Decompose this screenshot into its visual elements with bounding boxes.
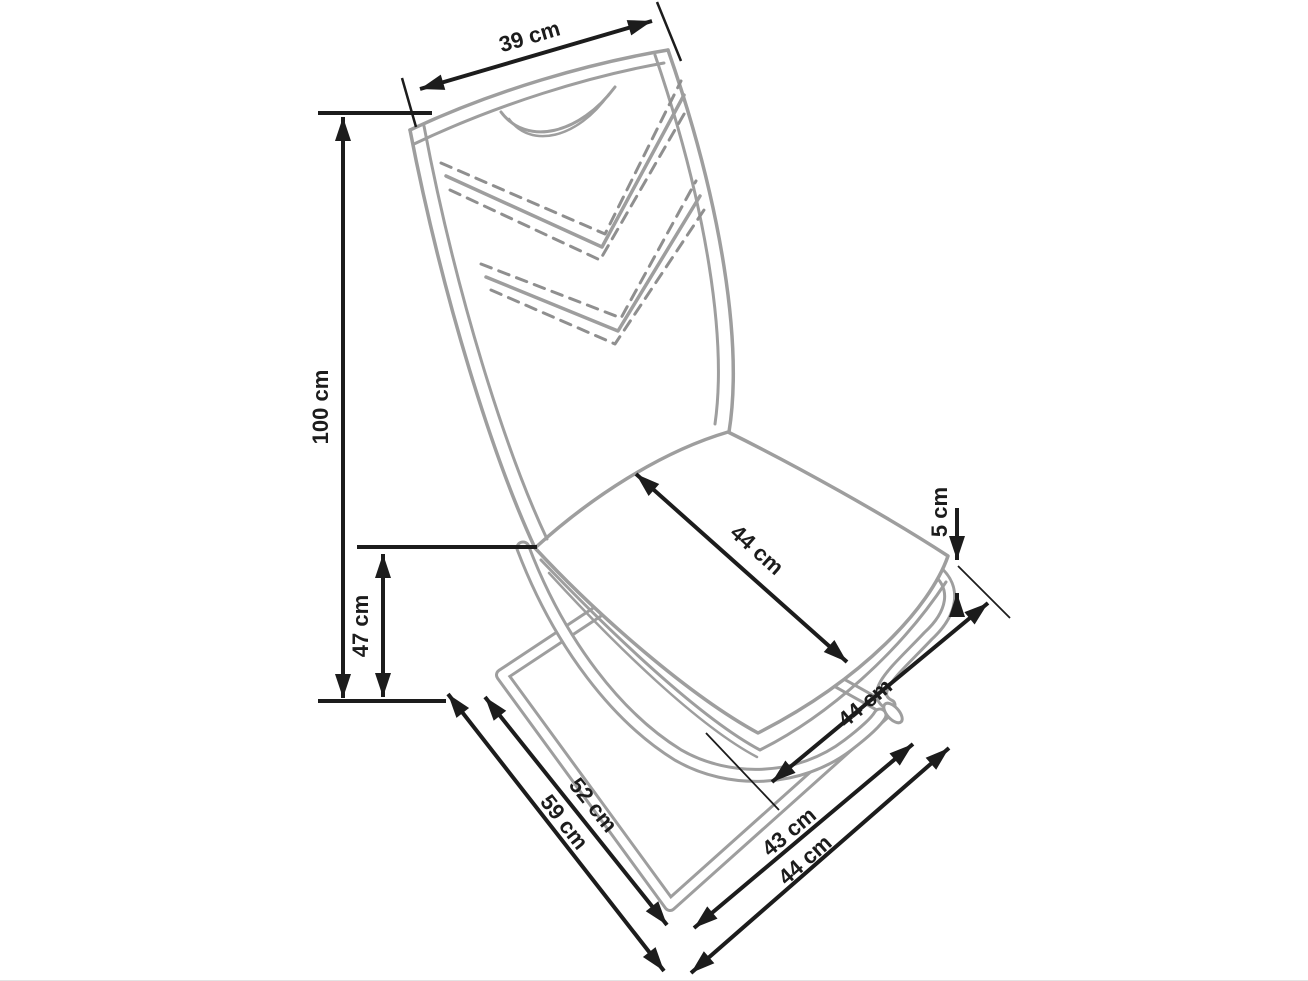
chevron-2-dash-upper: [481, 181, 696, 318]
chair-drawing: [410, 50, 950, 905]
extension-tick: [402, 78, 416, 127]
chevron-stitching: [441, 81, 704, 344]
dimension-label: 47 cm: [348, 595, 373, 657]
chevron-1-dash-upper: [441, 81, 681, 234]
backrest-top-edge: [410, 50, 668, 130]
leader-line: [958, 566, 1010, 618]
dimension-line: [448, 694, 664, 971]
dimension-label: 100 cm: [308, 370, 333, 445]
dimension-base-length-outer: 59 cm: [448, 694, 664, 971]
diagram-canvas: 39 cm 100 cm 47 cm 44 cm 5 cm: [0, 0, 1308, 981]
backrest-left-edge-outer: [410, 130, 535, 548]
dimension-backrest-width: 39 cm: [402, 2, 681, 127]
chevron-1-dash-lower: [450, 109, 687, 260]
dimension-label: 5 cm: [927, 487, 952, 537]
backrest-left-edge-inner: [424, 126, 547, 539]
chair-dimension-diagram: 39 cm 100 cm 47 cm 44 cm 5 cm: [0, 0, 1308, 981]
chevron-1-solid: [446, 95, 684, 247]
